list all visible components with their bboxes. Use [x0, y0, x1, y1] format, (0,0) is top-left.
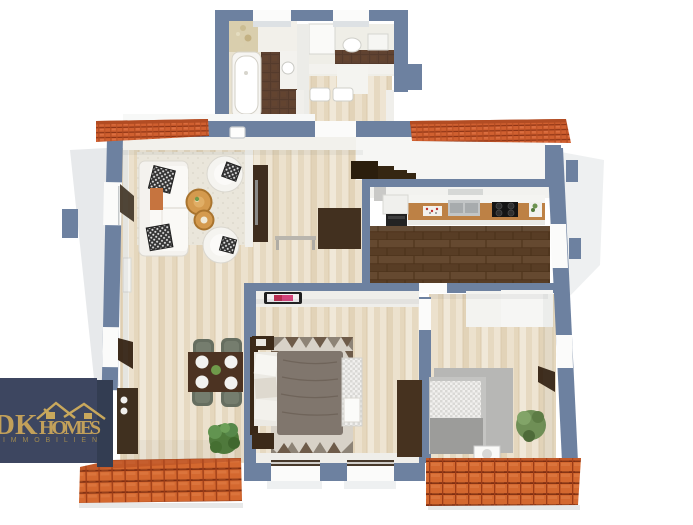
svg-text:HOMES: HOMES — [39, 417, 101, 439]
svg-text:DK: DK — [0, 409, 38, 441]
